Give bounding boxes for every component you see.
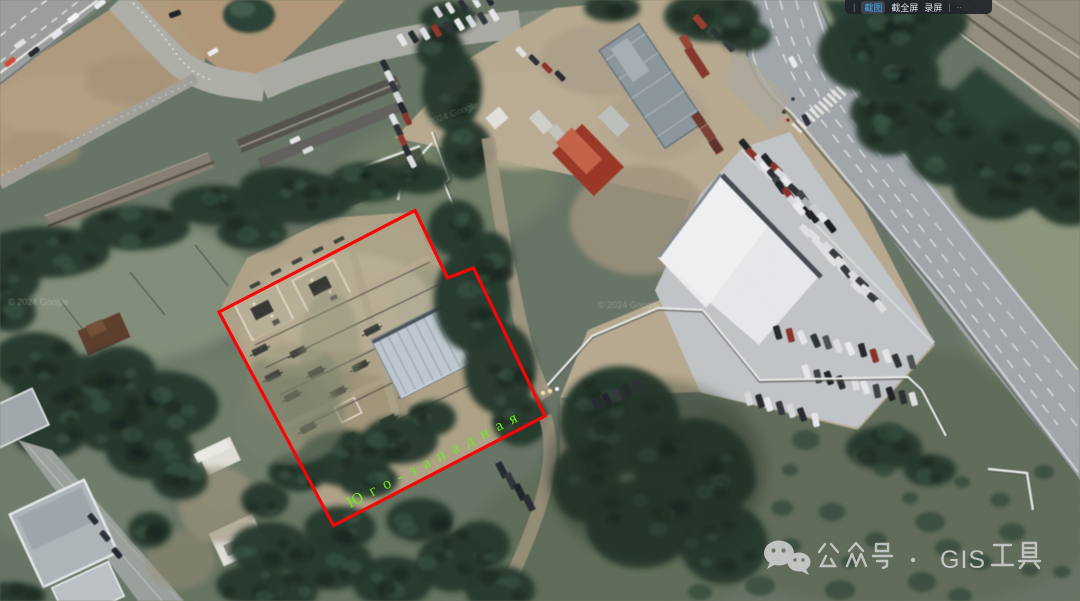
svg-text:GIS: GIS	[940, 546, 986, 574]
svg-text:Юго-западная: Юго-западная	[344, 406, 528, 512]
